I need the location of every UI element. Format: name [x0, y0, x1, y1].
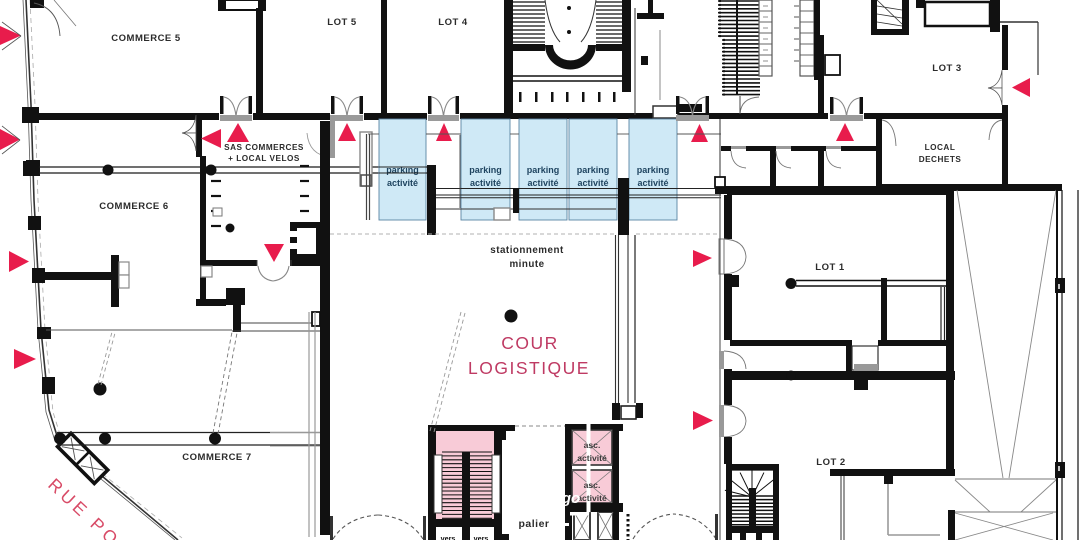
- svg-text:LOT 2: LOT 2: [816, 457, 845, 468]
- svg-text:stationnement: stationnement: [490, 245, 564, 256]
- svg-text:parking: parking: [469, 165, 502, 175]
- svg-text:minute: minute: [509, 259, 544, 270]
- svg-text:activité: activité: [387, 178, 418, 188]
- svg-text:activité: activité: [577, 493, 607, 503]
- svg-text:activité: activité: [470, 178, 501, 188]
- svg-text:activité: activité: [577, 453, 607, 463]
- svg-text:parking: parking: [637, 165, 670, 175]
- svg-text:SAS COMMERCES: SAS COMMERCES: [224, 143, 304, 152]
- svg-text:COMMERCE 7: COMMERCE 7: [182, 452, 251, 463]
- svg-text:LOT 1: LOT 1: [815, 262, 845, 273]
- svg-text:activité: activité: [527, 178, 558, 188]
- svg-text:COMMERCE 6: COMMERCE 6: [99, 201, 168, 212]
- svg-text:+ LOCAL VELOS: + LOCAL VELOS: [228, 154, 300, 163]
- svg-text:COMMERCE 5: COMMERCE 5: [111, 33, 181, 44]
- svg-text:activité: activité: [577, 178, 608, 188]
- svg-text:palier: palier: [518, 518, 549, 530]
- svg-text:parking: parking: [577, 165, 610, 175]
- svg-text:LOT 3: LOT 3: [932, 63, 961, 74]
- svg-text:asc.: asc.: [584, 480, 601, 490]
- svg-text:LOT 5: LOT 5: [327, 17, 357, 28]
- svg-text:vers: vers: [441, 534, 456, 540]
- svg-text:activité: activité: [637, 178, 668, 188]
- svg-text:go: go: [561, 490, 580, 507]
- svg-text:LOT 4: LOT 4: [438, 17, 468, 28]
- svg-text:vers: vers: [474, 534, 489, 540]
- svg-text:DECHETS: DECHETS: [919, 155, 962, 164]
- svg-text:LOCAL: LOCAL: [925, 143, 956, 152]
- svg-text:LOGISTIQUE: LOGISTIQUE: [468, 358, 590, 378]
- svg-text:asc.: asc.: [584, 440, 601, 450]
- svg-text:COUR: COUR: [501, 333, 559, 353]
- svg-text:parking: parking: [527, 165, 560, 175]
